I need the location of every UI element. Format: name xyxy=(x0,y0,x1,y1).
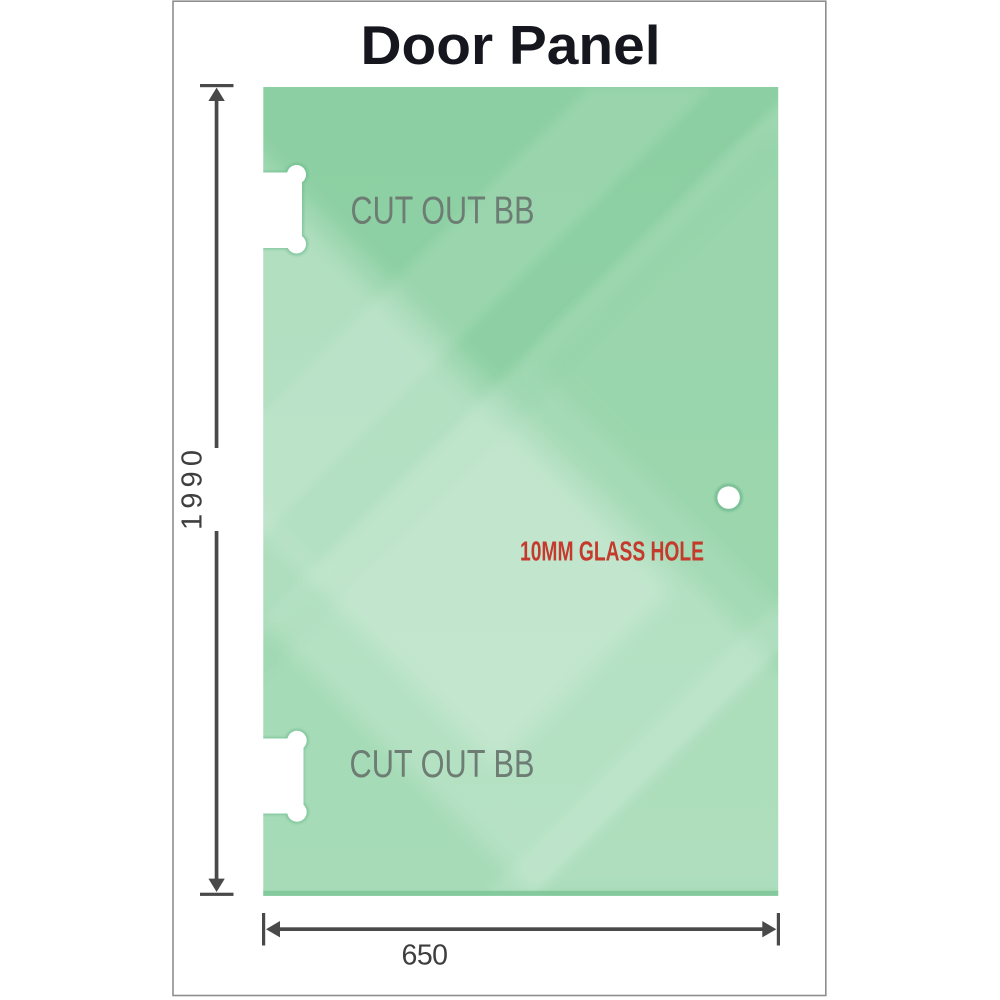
svg-text:CUT OUT BB: CUT OUT BB xyxy=(350,743,535,786)
svg-text:CUT OUT BB: CUT OUT BB xyxy=(351,189,535,232)
svg-text:650: 650 xyxy=(402,940,449,972)
svg-text:Door Panel: Door Panel xyxy=(361,14,661,76)
svg-text:10MM GLASS HOLE: 10MM GLASS HOLE xyxy=(520,536,704,567)
